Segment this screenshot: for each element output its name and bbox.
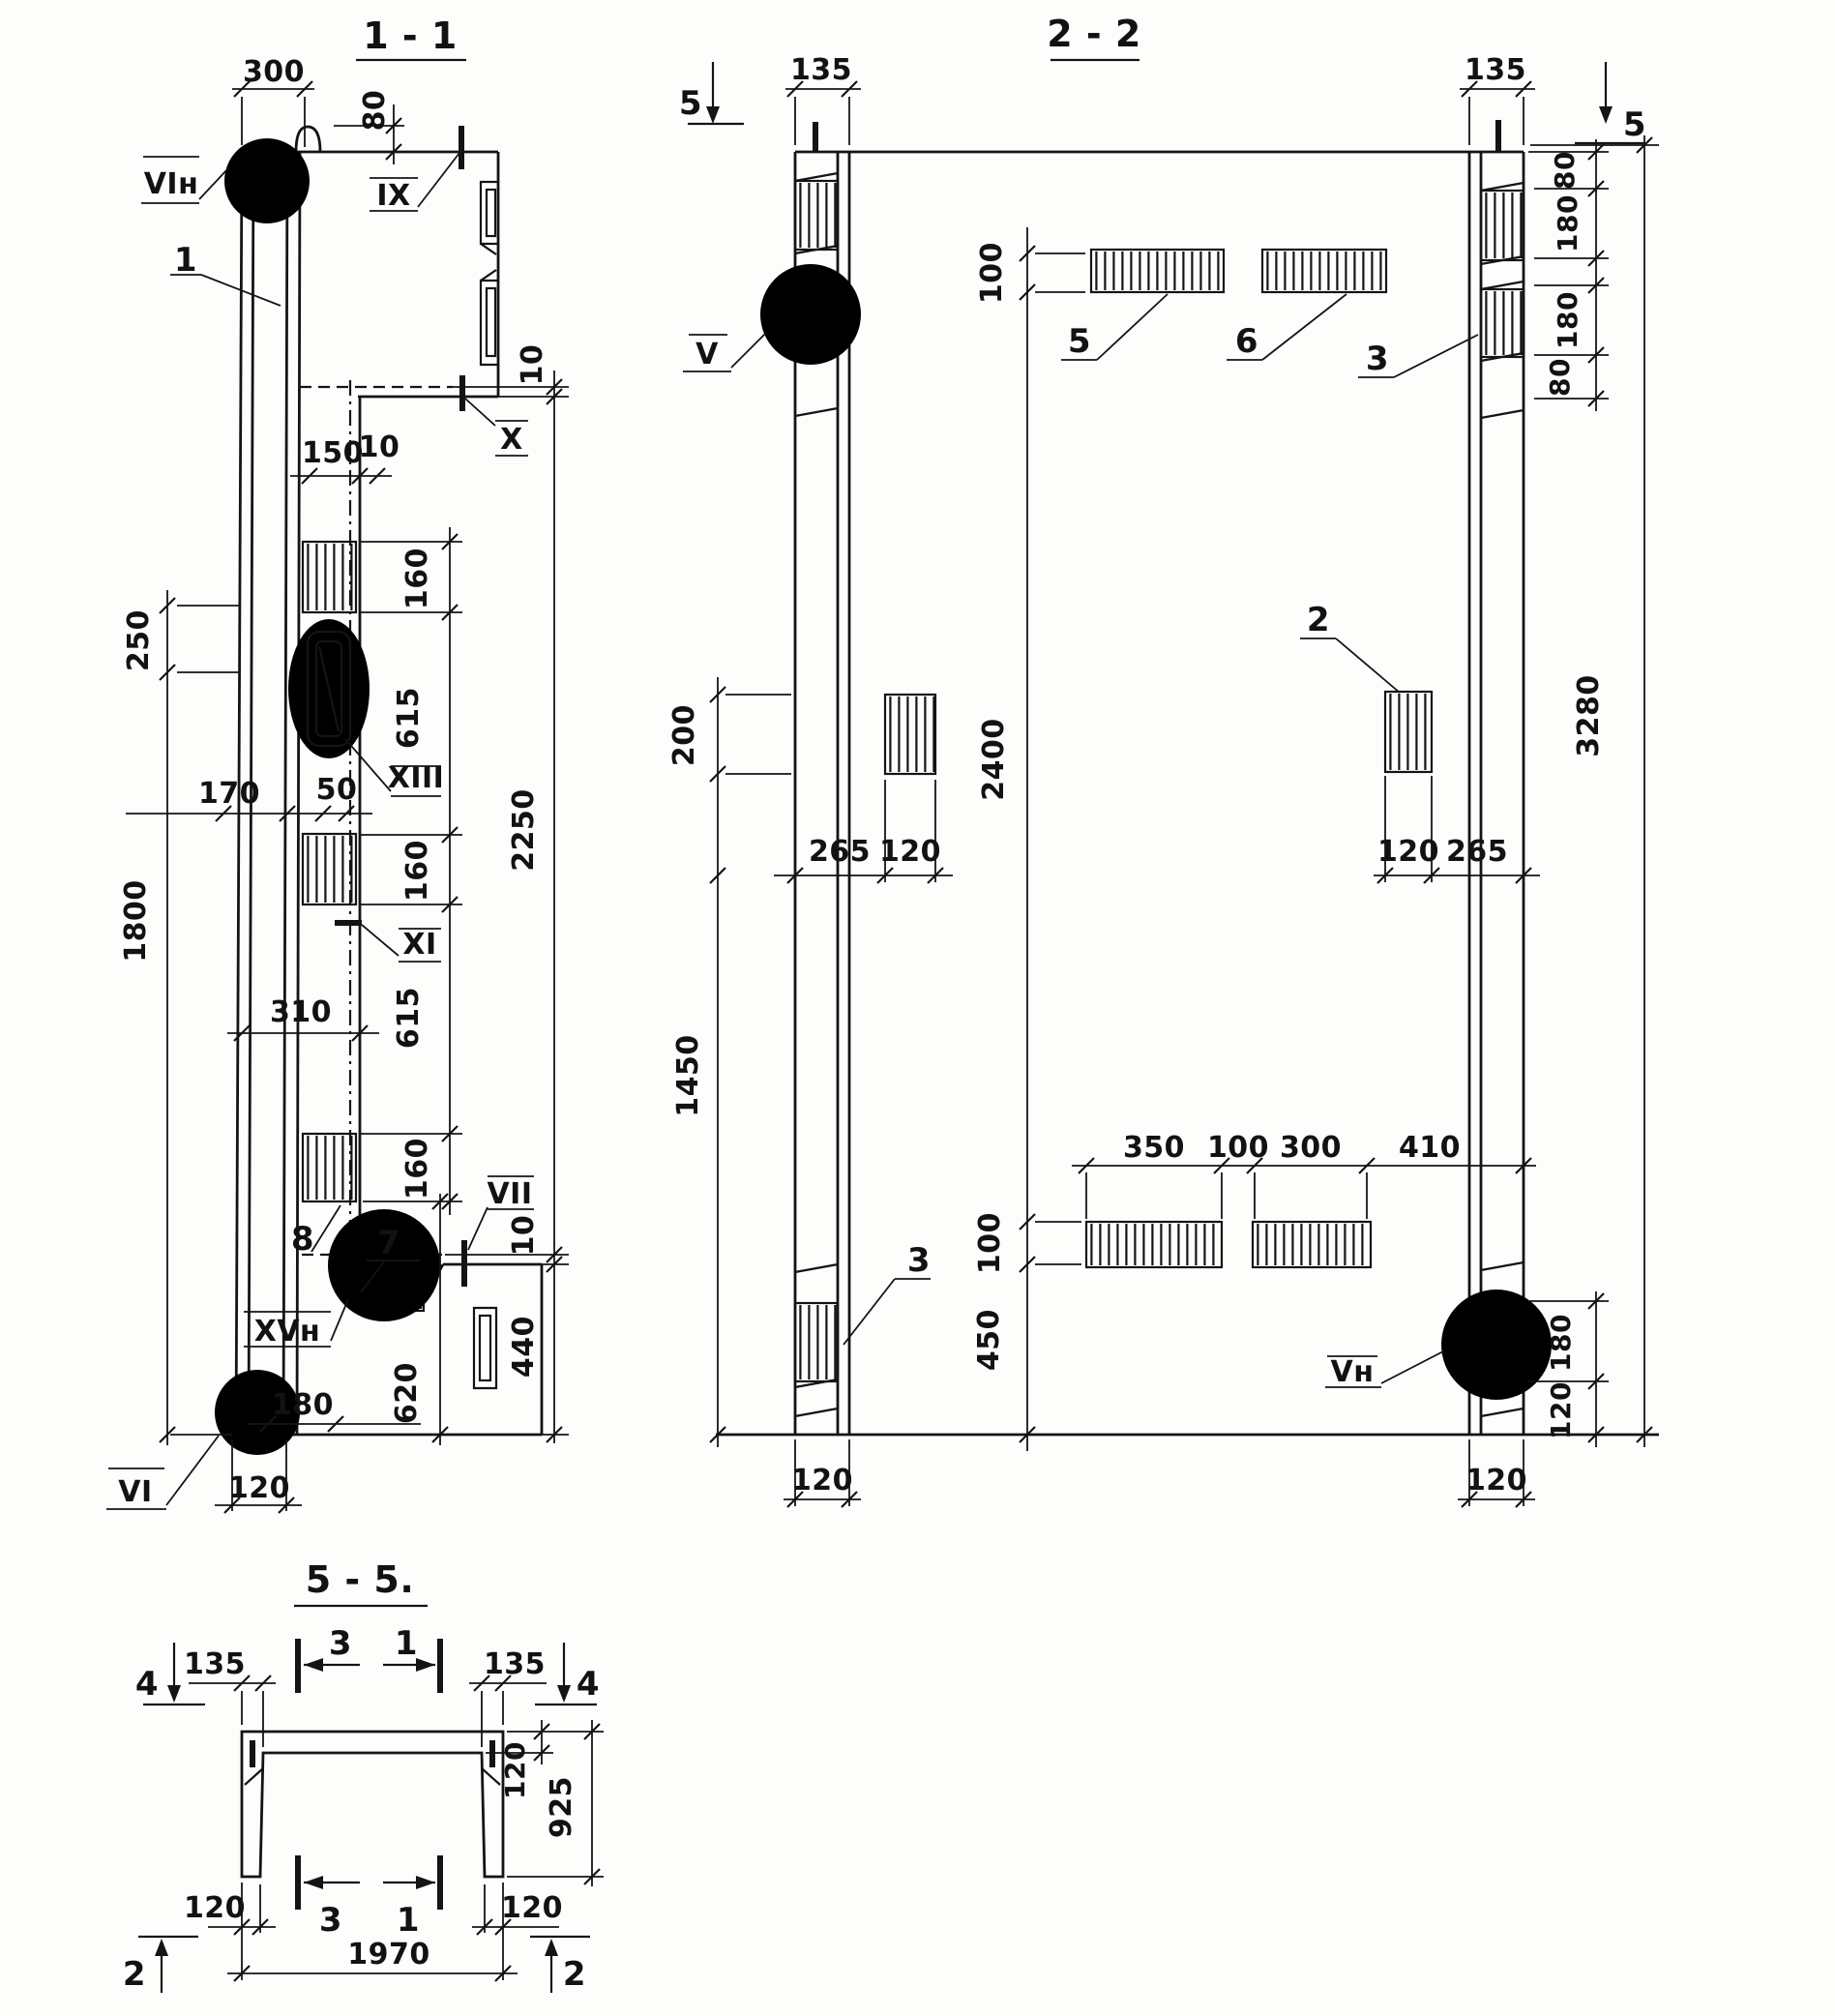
- structural-drawing: 1 - 1: [0, 0, 1835, 2016]
- s22-anchor-ticks: [815, 120, 1498, 152]
- dim-135-left: 135: [184, 1647, 246, 1681]
- dim-615-a: 615: [392, 687, 426, 749]
- dim-1800: 1800: [119, 879, 153, 963]
- dim-1450: 1450: [671, 1034, 705, 1117]
- callout-1: 1: [174, 241, 197, 280]
- dim-3280: 3280: [1572, 674, 1606, 757]
- callout-3-top: 3: [1366, 340, 1389, 378]
- mark-xiii: XIII: [388, 761, 445, 795]
- s11-leaders: [106, 153, 534, 1509]
- cut-marker-4-left: 4: [135, 1665, 159, 1704]
- s55-cut-marker-1-top: 1: [383, 1624, 440, 1693]
- dim-160-b: 160: [400, 840, 434, 902]
- mark-ix: IX: [376, 179, 410, 213]
- mark-xvn: XVн: [254, 1315, 321, 1349]
- drawing-sheet: 1 - 1: [0, 0, 1835, 2016]
- embedded-bar: [1086, 1222, 1222, 1267]
- dim-410: 410: [1399, 1131, 1461, 1165]
- cut-marker-1-bottom: 1: [397, 1901, 420, 1940]
- dim-265-left: 265: [809, 835, 871, 869]
- lifting-loop: [296, 127, 320, 152]
- dim-2400: 2400: [977, 718, 1011, 801]
- dim-180-b: 180: [1552, 291, 1583, 349]
- dim-150: 150: [302, 436, 364, 470]
- s22-leaders: [683, 294, 1478, 1387]
- cut-marker-1-top: 1: [395, 1624, 418, 1663]
- dim-10-bot: 10: [507, 1215, 541, 1257]
- dim-100-mid: 100: [1207, 1131, 1269, 1165]
- dim-120-bottom-right: 120: [501, 1891, 563, 1925]
- section-5-5-title: 5 - 5.: [306, 1558, 415, 1601]
- dim-120: 120: [228, 1471, 290, 1505]
- dim-450: 450: [972, 1309, 1006, 1371]
- dim-120-right: 120: [1377, 835, 1439, 869]
- embedded-plate: [1481, 191, 1524, 260]
- dim-120-bottom-left: 120: [184, 1891, 246, 1925]
- dim-135-right: 135: [1465, 53, 1526, 87]
- s55-cut-marker-3-top: 3: [298, 1624, 360, 1693]
- s55-cut-marker-1-bottom: 1: [383, 1855, 440, 1940]
- callout-2: 2: [1307, 601, 1330, 639]
- mark-vi: VI: [118, 1475, 152, 1509]
- dim-350: 350: [1123, 1131, 1185, 1165]
- dim-80: 80: [358, 90, 392, 132]
- embedded-plate: [795, 181, 838, 250]
- cut-marker-2-left: 2: [123, 1955, 146, 1994]
- detail-circle-vin: [224, 138, 310, 223]
- dim-925: 925: [545, 1776, 578, 1838]
- dim-10-mid: 10: [359, 430, 400, 464]
- dim-120-flange: 120: [499, 1741, 531, 1799]
- dim-160-c: 160: [400, 1138, 434, 1200]
- embedded-bar-6: [1262, 250, 1386, 292]
- cut-marker-5-right: 5: [1623, 105, 1646, 144]
- s22-detail-circles: [760, 264, 1552, 1400]
- dim-300: 300: [1280, 1131, 1342, 1165]
- dim-120-under-left: 120: [791, 1464, 853, 1497]
- dim-180-a: 180: [1552, 194, 1583, 252]
- dim-80-a: 80: [1549, 151, 1581, 190]
- dim-135-right: 135: [484, 1647, 546, 1681]
- s22-rib-dividers: [795, 173, 1524, 1416]
- s55-corner-details: [245, 1768, 500, 1785]
- dim-265-right: 265: [1446, 835, 1508, 869]
- s22-embedded-plates: [795, 181, 1524, 1381]
- dim-200: 200: [667, 704, 701, 766]
- callout-6: 6: [1235, 322, 1258, 361]
- cut-marker-3-top: 3: [329, 1624, 352, 1663]
- section-1-1: 1 - 1: [106, 15, 569, 1513]
- dim-250: 250: [122, 609, 156, 671]
- mark-vn: Vн: [1331, 1355, 1375, 1389]
- section-2-2: 2 - 2: [667, 13, 1659, 1507]
- cut-marker-4-right: 4: [577, 1665, 600, 1704]
- cut-marker-2-right: 2: [563, 1955, 586, 1994]
- mark-v: V: [696, 338, 719, 371]
- callout-3-bottom: 3: [907, 1241, 931, 1280]
- cut-marker-3-bottom: 3: [319, 1901, 342, 1940]
- dim-180: 180: [272, 1388, 334, 1422]
- dim-440: 440: [507, 1316, 541, 1378]
- dim-310: 310: [270, 995, 332, 1029]
- s55-channel-profile: [242, 1732, 503, 1877]
- dim-10-top: 10: [516, 344, 549, 386]
- dim-120-c: 120: [1545, 1381, 1577, 1439]
- dim-100-bot: 100: [973, 1212, 1007, 1274]
- section-1-1-title: 1 - 1: [363, 15, 458, 57]
- s22-cut-marker-right: 5: [1575, 62, 1646, 144]
- dim-160-a: 160: [400, 548, 434, 609]
- dim-1970: 1970: [347, 1938, 430, 1972]
- section-2-2-title: 2 - 2: [1047, 13, 1141, 55]
- s55-cut-marker-3-bottom: 3: [298, 1855, 360, 1940]
- mark-xi: XI: [402, 928, 436, 962]
- s55-cut-marker-2-left: 2: [123, 1937, 198, 1994]
- embedded-plate: [303, 834, 356, 904]
- mark-x: X: [500, 423, 523, 457]
- dim-120-under-right: 120: [1465, 1464, 1527, 1497]
- dim-100-top: 100: [975, 242, 1009, 304]
- dim-620: 620: [390, 1362, 424, 1424]
- dim-180-c: 180: [1545, 1314, 1577, 1372]
- mark-vii: VII: [487, 1177, 532, 1211]
- s55-cut-marker-2-right: 2: [530, 1937, 590, 1994]
- detail-circle-vn: [1441, 1290, 1552, 1400]
- detail-circle-v: [760, 264, 861, 365]
- embedded-plate: [885, 695, 935, 774]
- dim-80-b: 80: [1544, 358, 1576, 397]
- callout-7: 7: [377, 1224, 400, 1262]
- embedded-plate: [795, 1303, 838, 1381]
- dim-300: 300: [243, 55, 305, 89]
- dim-120-left: 120: [879, 835, 941, 869]
- dim-50: 50: [316, 773, 358, 807]
- embedded-plate: [1481, 289, 1524, 357]
- cut-marker-5-left: 5: [679, 84, 702, 123]
- dim-2250: 2250: [507, 788, 541, 872]
- dim-135-left: 135: [790, 53, 852, 87]
- s22-cut-marker-left: 5: [679, 62, 744, 124]
- section-5-5: 5 - 5. 4: [123, 1558, 604, 1994]
- dim-170: 170: [198, 777, 260, 811]
- embedded-plate: [303, 542, 356, 612]
- callout-8: 8: [291, 1220, 314, 1259]
- embedded-plate: [303, 1134, 356, 1201]
- callout-5: 5: [1068, 322, 1091, 361]
- s11-slot-detail-xiii: [288, 619, 370, 758]
- dim-615-b: 615: [392, 987, 426, 1049]
- mark-vin: VIн: [144, 167, 199, 201]
